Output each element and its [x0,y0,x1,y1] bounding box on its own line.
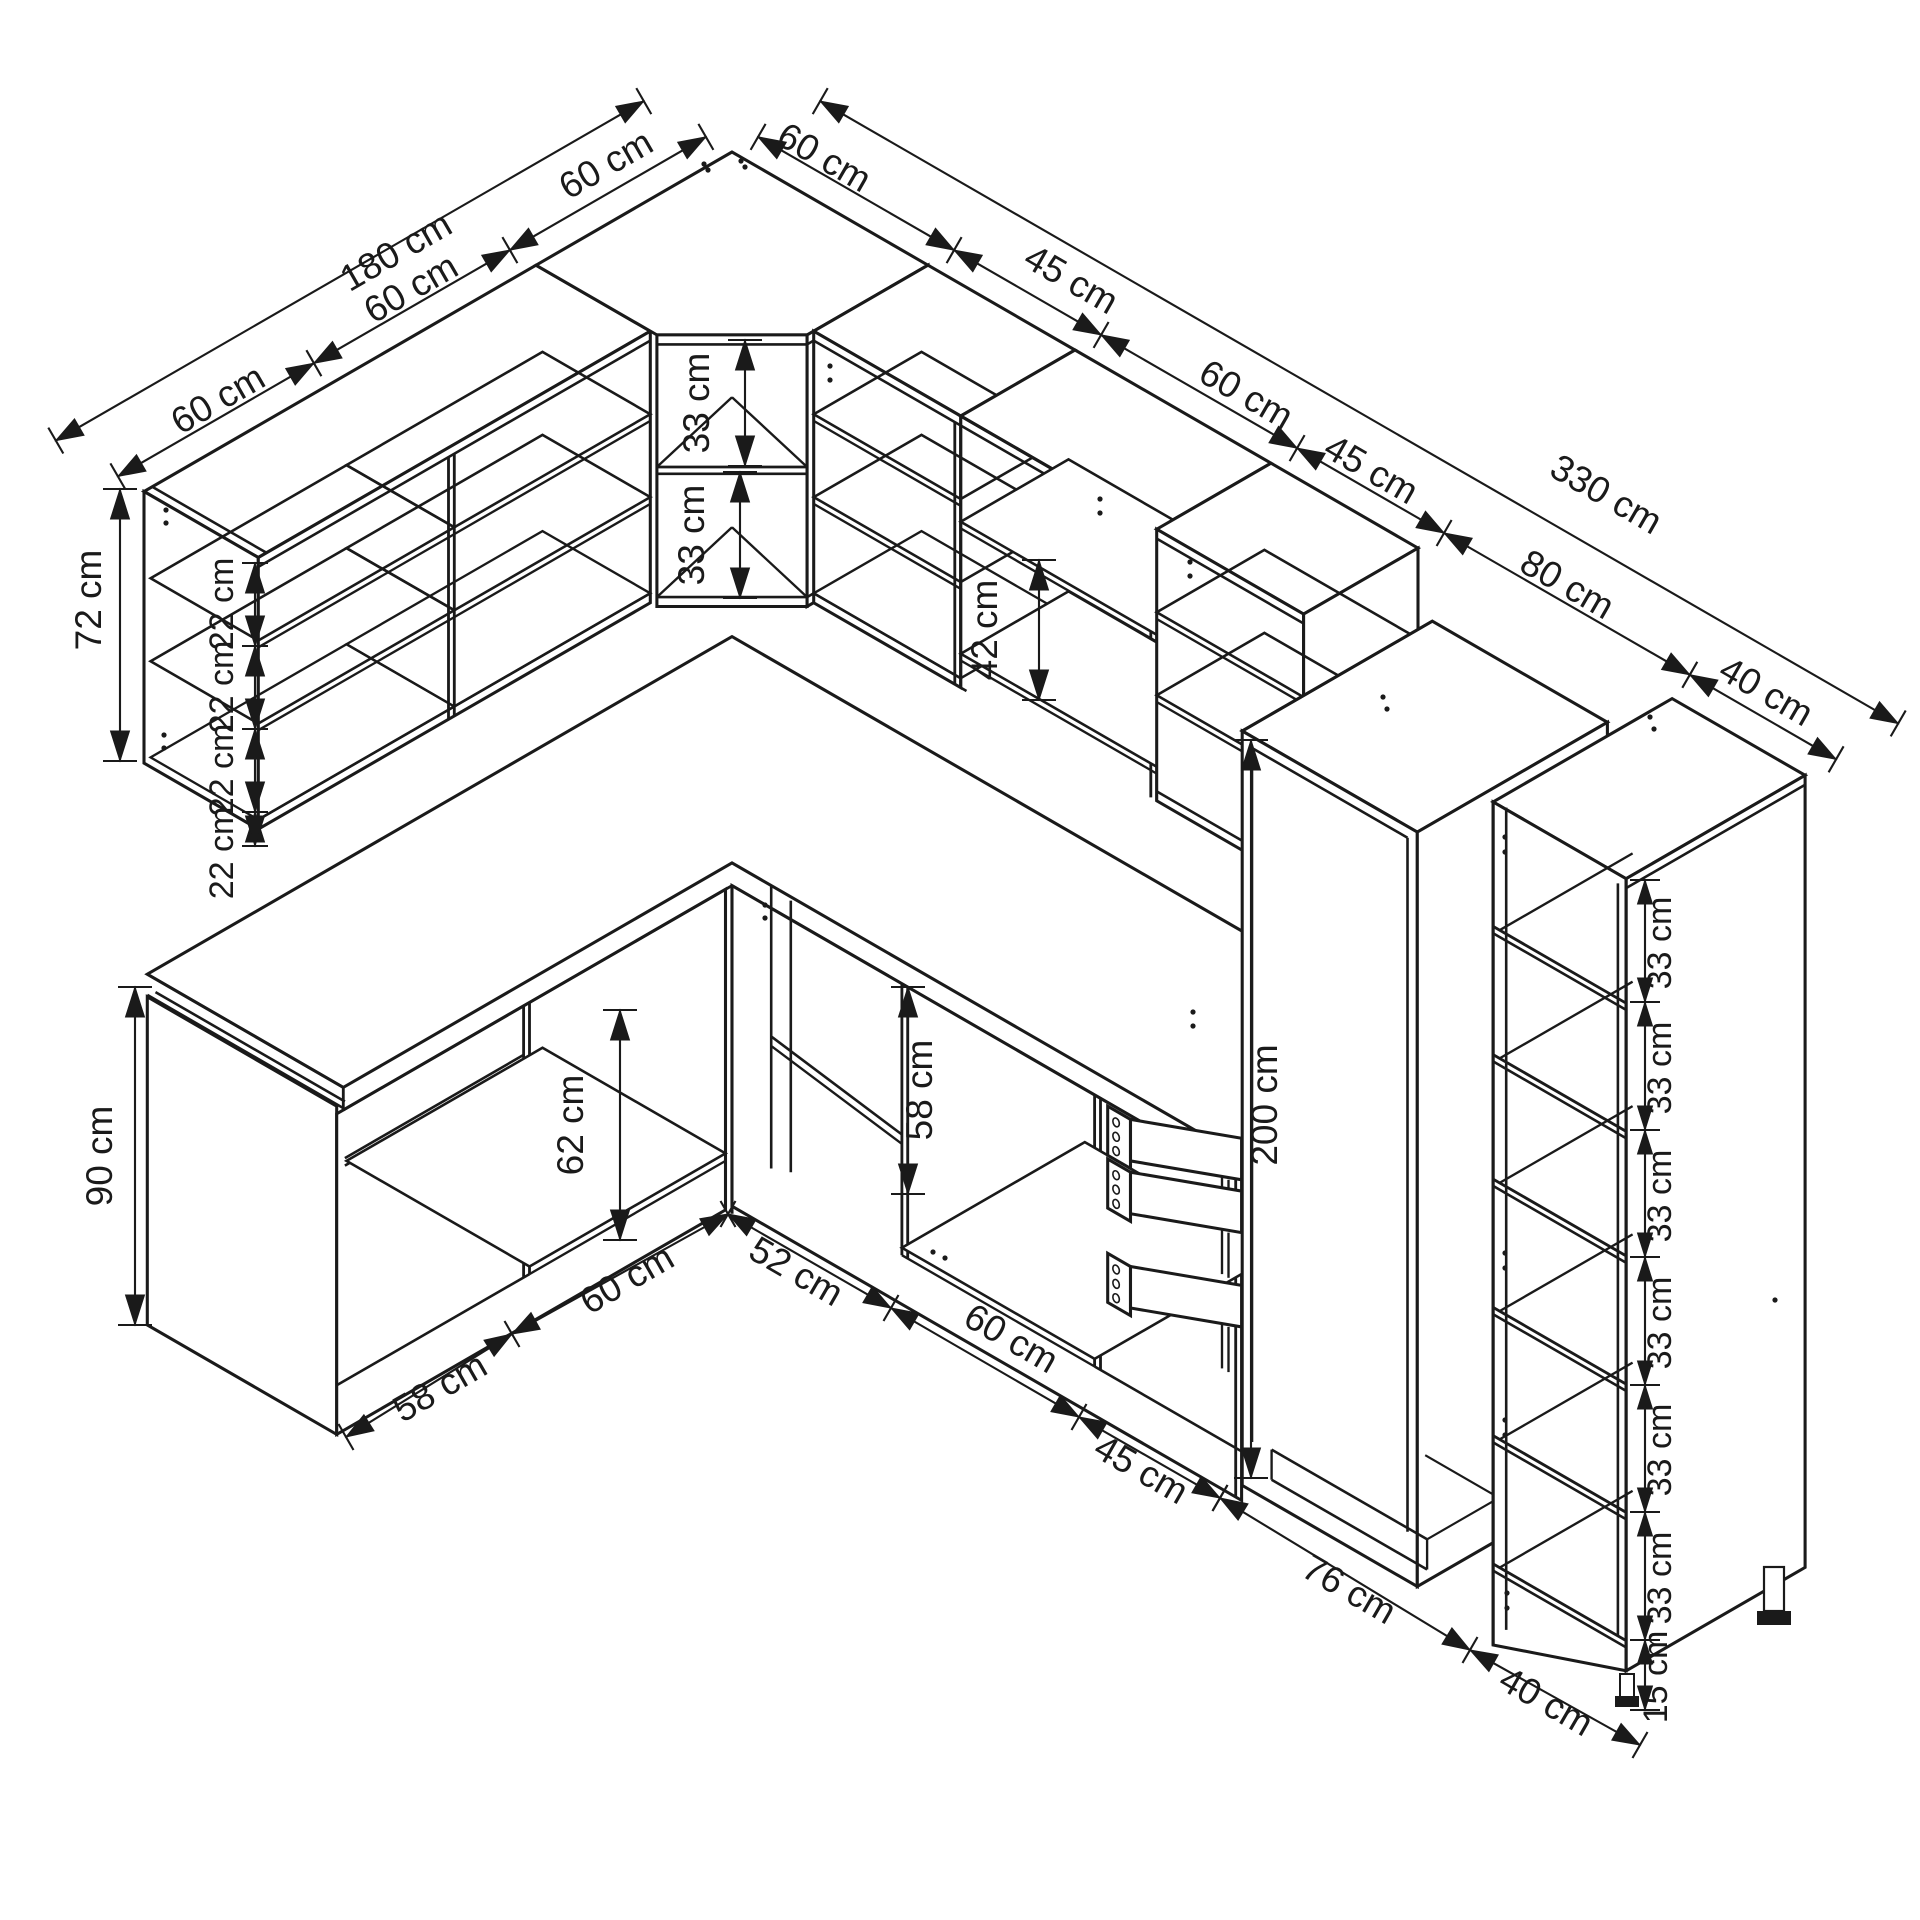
svg-text:33 cm: 33 cm [1641,1277,1679,1370]
svg-text:72 cm: 72 cm [68,550,109,651]
svg-text:33 cm: 33 cm [1641,1150,1679,1243]
svg-text:62 cm: 62 cm [550,1075,591,1176]
svg-text:58 cm: 58 cm [899,1040,940,1141]
svg-text:22 cm: 22 cm [203,641,241,734]
svg-text:33 cm: 33 cm [671,485,712,586]
svg-text:22 cm: 22 cm [203,558,241,651]
svg-text:33 cm: 33 cm [1641,1404,1679,1497]
svg-text:33 cm: 33 cm [1641,1022,1679,1115]
svg-text:15 cm: 15 cm [1637,1631,1675,1724]
svg-text:33 cm: 33 cm [1641,1532,1679,1625]
svg-text:90 cm: 90 cm [79,1106,120,1207]
svg-text:22 cm: 22 cm [203,807,241,900]
svg-text:42 cm: 42 cm [964,580,1005,681]
svg-text:33 cm: 33 cm [676,353,717,454]
svg-text:200 cm: 200 cm [1244,1044,1285,1165]
svg-text:22 cm: 22 cm [203,724,241,817]
svg-text:33 cm: 33 cm [1641,897,1679,990]
